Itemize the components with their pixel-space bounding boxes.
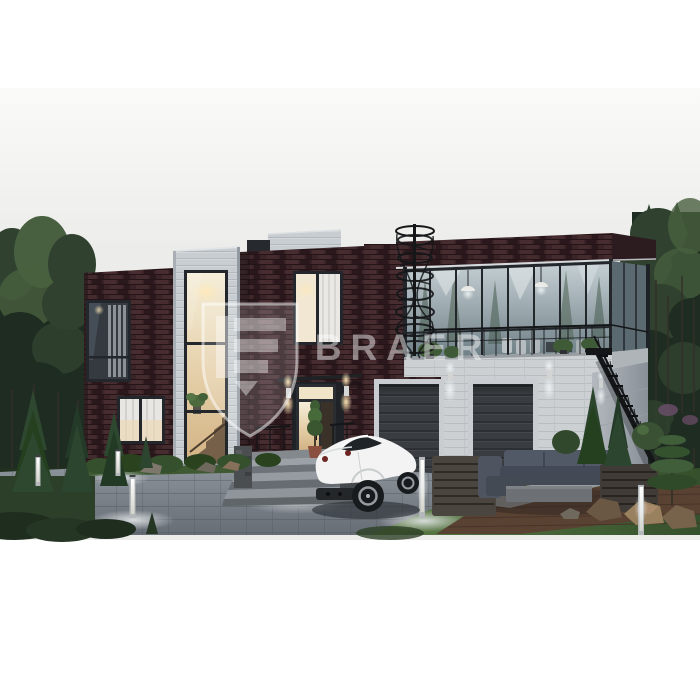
taillight	[345, 450, 351, 456]
interior-light-glow	[94, 305, 104, 315]
interior-light-glow	[296, 282, 316, 298]
pavilion-side-glass	[612, 261, 650, 352]
upper-corner-window	[86, 300, 131, 382]
lower-left-window	[117, 396, 165, 444]
garage-sconce-2	[543, 359, 555, 400]
house-render-canvas: BRAER	[0, 0, 700, 700]
taillight	[322, 456, 328, 462]
terrace-chair	[516, 340, 526, 354]
bollard-light	[116, 449, 121, 476]
bollard-light	[36, 455, 41, 486]
roof-soffit-line-side	[612, 259, 656, 260]
architectural-render: Dusk exterior rendering of a modern two-…	[0, 0, 700, 700]
bollard-light	[130, 475, 136, 518]
car-wheel-front	[397, 472, 419, 494]
watermark-brand-text: BRAER	[315, 327, 492, 368]
car-diffuser	[316, 488, 356, 500]
